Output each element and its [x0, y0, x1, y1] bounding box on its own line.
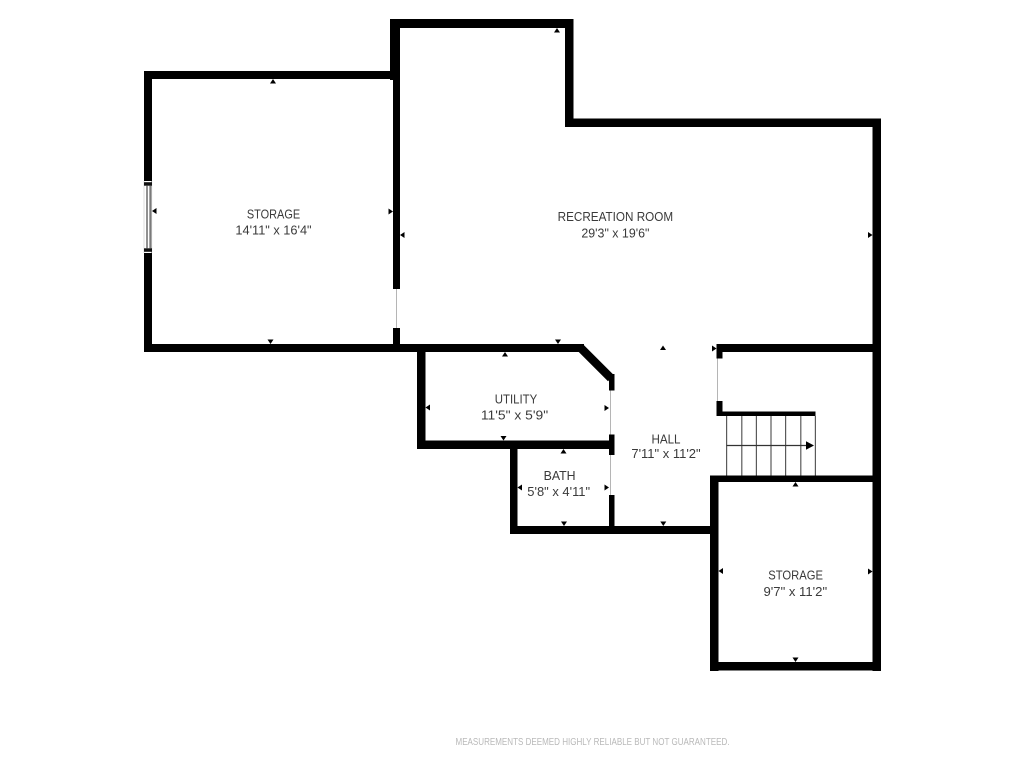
- svg-text:UTILITY: UTILITY: [495, 392, 538, 407]
- svg-text:MEASUREMENTS DEEMED HIGHLY REL: MEASUREMENTS DEEMED HIGHLY RELIABLE BUT …: [456, 737, 730, 748]
- svg-text:14'11" x 16'4": 14'11" x 16'4": [235, 222, 312, 237]
- svg-text:29'3" x 19'6": 29'3" x 19'6": [581, 226, 649, 241]
- svg-text:BATH: BATH: [544, 468, 576, 483]
- svg-text:5'8" x 4'11": 5'8" x 4'11": [527, 484, 590, 499]
- svg-text:RECREATION ROOM: RECREATION ROOM: [558, 209, 674, 224]
- svg-text:7'11" x 11'2": 7'11" x 11'2": [631, 446, 701, 461]
- svg-text:STORAGE: STORAGE: [247, 206, 301, 221]
- svg-text:HALL: HALL: [651, 431, 680, 446]
- svg-text:STORAGE: STORAGE: [768, 568, 823, 583]
- svg-text:11'5" x 5'9": 11'5" x 5'9": [481, 407, 549, 422]
- svg-text:9'7" x 11'2": 9'7" x 11'2": [764, 584, 828, 599]
